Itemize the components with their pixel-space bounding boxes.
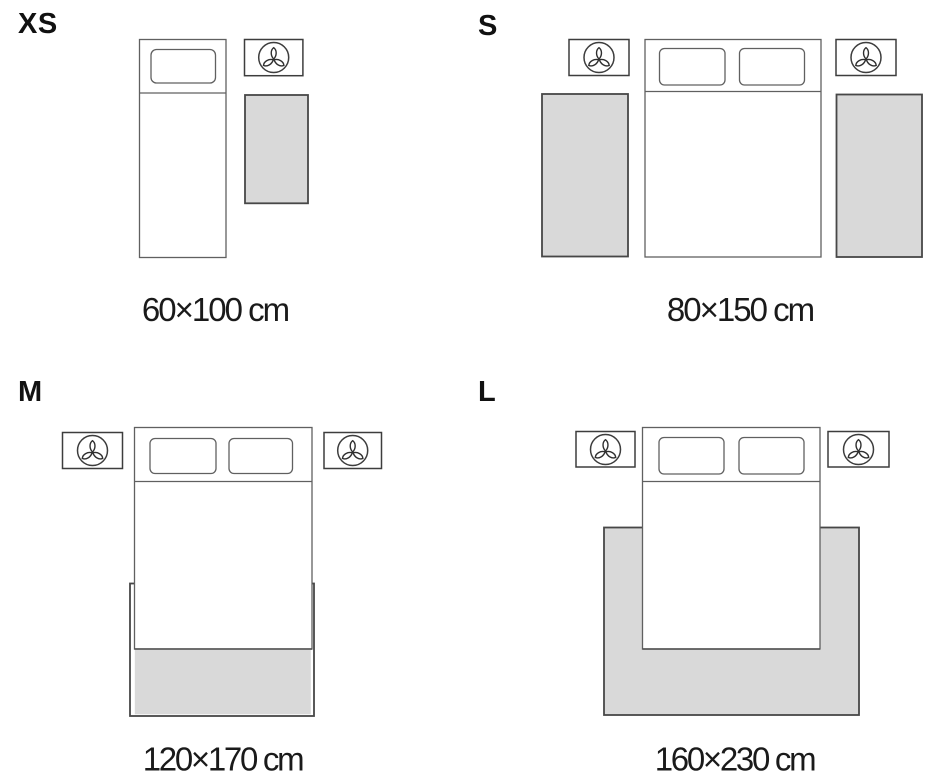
- svg-text:160×230 cm: 160×230 cm: [655, 741, 815, 778]
- svg-text:M: M: [18, 376, 42, 408]
- svg-text:L: L: [478, 376, 496, 408]
- svg-text:60×100 cm: 60×100 cm: [142, 291, 289, 328]
- svg-text:XS: XS: [18, 8, 58, 40]
- svg-text:120×170 cm: 120×170 cm: [143, 741, 303, 778]
- svg-text:80×150 cm: 80×150 cm: [667, 291, 814, 328]
- svg-text:S: S: [478, 10, 497, 42]
